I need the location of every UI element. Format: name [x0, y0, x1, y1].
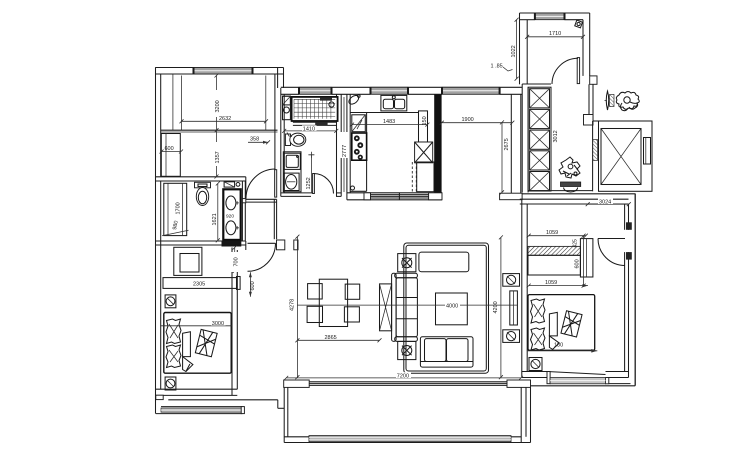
svg-text:920: 920	[226, 214, 234, 220]
svg-text:1059: 1059	[546, 230, 558, 236]
svg-text:3000: 3000	[212, 321, 224, 327]
svg-text:2865: 2865	[325, 335, 337, 341]
svg-text:1410: 1410	[303, 126, 315, 132]
svg-text:4200: 4200	[493, 301, 499, 313]
svg-text:4000: 4000	[446, 304, 458, 310]
svg-text:3200: 3200	[215, 100, 221, 112]
svg-text:2777: 2777	[342, 145, 348, 157]
svg-text:600: 600	[574, 259, 580, 268]
svg-text:150: 150	[422, 116, 428, 125]
svg-text:180: 180	[554, 343, 563, 349]
svg-text:1022: 1022	[511, 45, 517, 57]
svg-text:600: 600	[250, 281, 256, 290]
svg-text:1357: 1357	[215, 151, 221, 163]
svg-text:1483: 1483	[383, 119, 395, 125]
svg-text:600: 600	[165, 146, 174, 152]
svg-text:1252: 1252	[306, 177, 312, 189]
svg-text:1 .85: 1 .85	[491, 64, 503, 70]
svg-text:3024: 3024	[599, 199, 611, 205]
svg-text:1059: 1059	[545, 280, 557, 286]
svg-text:2675: 2675	[504, 138, 510, 150]
svg-text:1900: 1900	[462, 117, 474, 123]
svg-text:2632: 2632	[219, 116, 231, 122]
svg-text:425: 425	[573, 239, 579, 248]
svg-text:7200: 7200	[397, 373, 409, 379]
svg-text:1700: 1700	[176, 202, 182, 214]
svg-text:2305: 2305	[193, 281, 205, 287]
svg-text:700: 700	[234, 257, 240, 266]
svg-text:3012: 3012	[553, 130, 559, 142]
svg-text:1710: 1710	[549, 31, 561, 37]
svg-text:4278: 4278	[290, 299, 296, 311]
svg-text:1621: 1621	[212, 213, 218, 225]
svg-text:358: 358	[250, 137, 259, 143]
